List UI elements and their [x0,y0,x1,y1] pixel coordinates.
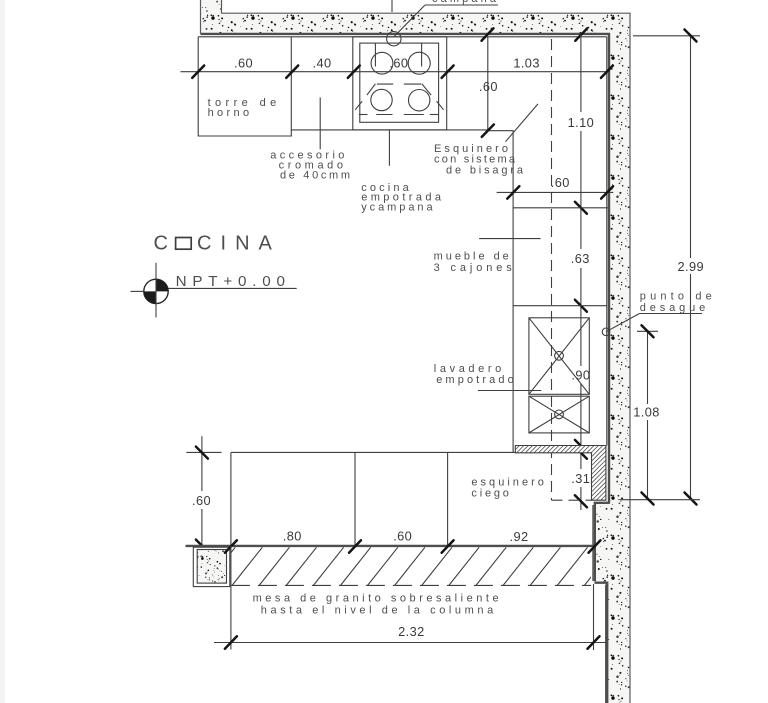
svg-text:.60: .60 [551,175,570,190]
svg-text:de bisagra: de bisagra [446,165,524,177]
svg-text:1.10: 1.10 [568,115,595,130]
svg-text:.60: .60 [192,493,211,508]
svg-text:C: C [154,233,175,255]
svg-text:.63: .63 [571,251,590,266]
svg-text:.31: .31 [571,471,590,486]
svg-text:CINA: CINA [197,233,273,255]
svg-text:2.99: 2.99 [678,259,705,274]
svg-text:.80: .80 [283,529,302,544]
svg-text:2.32: 2.32 [398,624,425,639]
svg-text:1.08: 1.08 [633,405,660,420]
svg-text:.92: .92 [510,529,529,544]
svg-text:.40: .40 [313,56,332,71]
svg-text:.60: .60 [479,79,498,94]
svg-text:hasta el nivel de la columna: hasta el nivel de la columna [261,605,494,617]
svg-text:NPT+0.00: NPT+0.00 [176,273,285,290]
svg-text:.60: .60 [234,56,253,71]
svg-text:1.03: 1.03 [513,55,540,70]
svg-text:.60: .60 [389,55,408,70]
svg-text:mesa de granito sobresaliente: mesa de granito sobresaliente [253,593,499,605]
svg-text:.60: .60 [393,529,412,544]
